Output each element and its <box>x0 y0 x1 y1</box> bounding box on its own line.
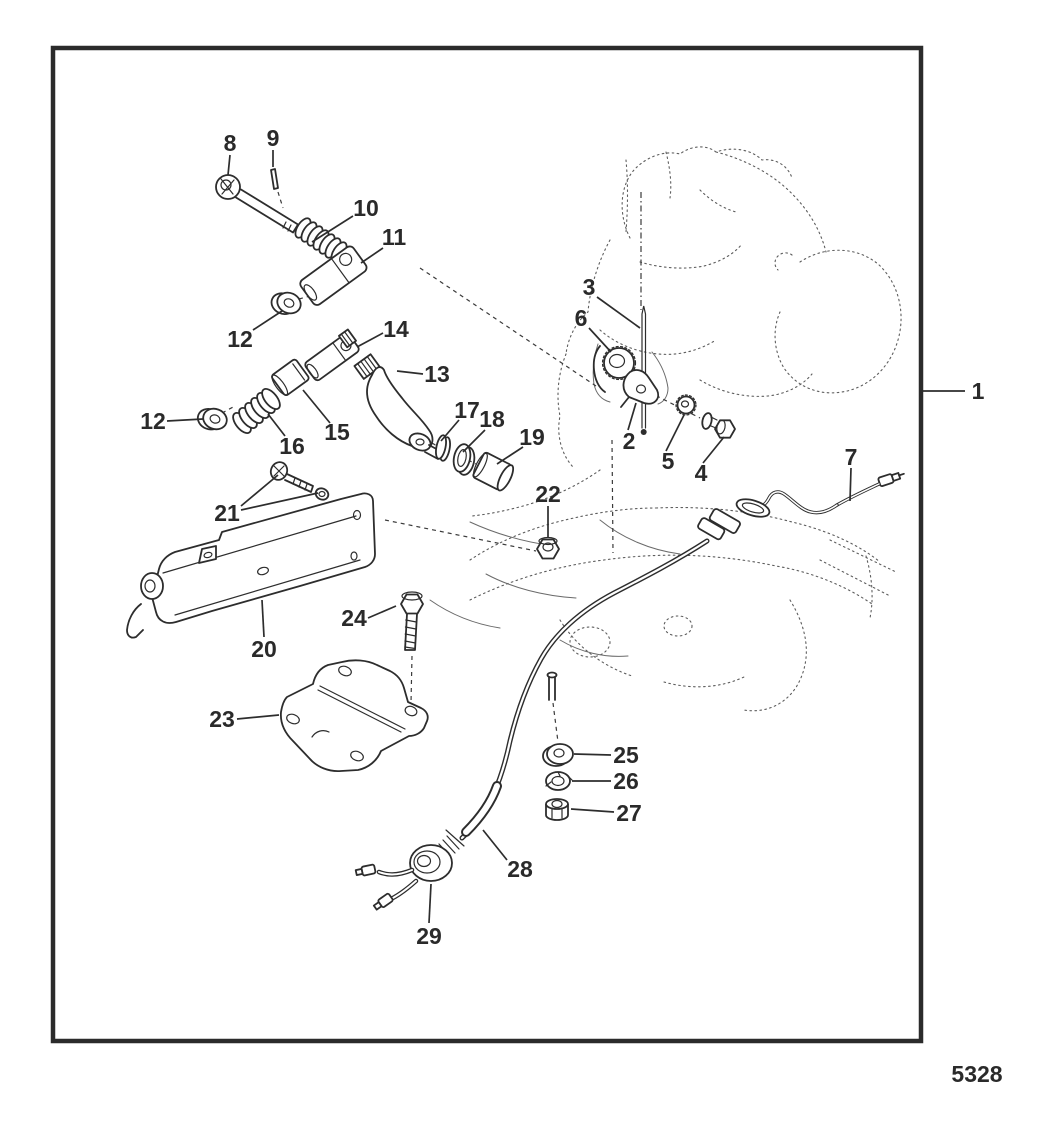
part-2-cam-lever <box>621 370 658 407</box>
part-22-nut <box>537 538 559 559</box>
leader-line-27 <box>571 809 614 812</box>
leader-line-20 <box>262 600 264 637</box>
callout-8: 8 <box>224 130 237 156</box>
part-9-pin <box>271 169 278 189</box>
callout-26: 26 <box>613 768 639 794</box>
callout-17: 17 <box>454 397 480 423</box>
callout-3: 3 <box>583 274 596 300</box>
part-stud <box>548 673 557 701</box>
leader-line-28 <box>483 830 507 860</box>
callout-1: 1 <box>972 378 985 404</box>
part-24-bolt <box>401 592 423 650</box>
part-14-link <box>302 329 362 382</box>
part-18-seal-ring <box>451 443 476 477</box>
leader-line-6 <box>589 328 611 352</box>
leader-line-18 <box>463 430 485 452</box>
callout-9: 9 <box>267 125 280 151</box>
callout-12: 12 <box>227 326 253 352</box>
callout-28: 28 <box>507 856 533 882</box>
part-12-washer-upper <box>268 287 304 320</box>
leader-line-2 <box>628 403 636 430</box>
callout-19: 19 <box>519 424 545 450</box>
callout-7: 7 <box>845 444 858 470</box>
leader-line-29 <box>429 884 431 923</box>
callout-29: 29 <box>416 923 442 949</box>
leader-line-21 <box>241 475 278 506</box>
cable-end-fitting <box>878 470 906 487</box>
part-25-washer <box>543 744 573 766</box>
callout-10: 10 <box>353 195 379 221</box>
part-27-nut <box>546 799 568 820</box>
part-5-nut <box>676 395 696 415</box>
callout-25: 25 <box>613 742 639 768</box>
callout-4: 4 <box>695 460 708 486</box>
callout-24: 24 <box>341 605 367 631</box>
part-16-spring <box>230 386 283 436</box>
part-19-bushing <box>470 451 516 493</box>
callout-14: 14 <box>383 316 409 342</box>
part-23-mounting-plate <box>281 660 428 771</box>
callout-12: 12 <box>140 408 166 434</box>
part-21-screw-and-washer <box>268 459 330 501</box>
leader-line-12 <box>253 311 282 330</box>
part-7-throttle-cable <box>462 470 905 838</box>
callout-21: 21 <box>214 500 240 526</box>
leader-line-5 <box>666 415 684 451</box>
part-4-bolt <box>701 412 735 437</box>
callout-2: 2 <box>623 428 636 454</box>
leader-line-7 <box>850 468 851 501</box>
leader-line-14 <box>357 333 383 347</box>
callout-6: 6 <box>575 305 588 331</box>
part-29-connector <box>355 830 464 911</box>
callout-11: 11 <box>382 224 407 250</box>
callout-18: 18 <box>479 406 505 432</box>
callout-16: 16 <box>279 433 305 459</box>
callout-23: 23 <box>209 706 235 732</box>
leader-line-25 <box>574 754 611 755</box>
callout-22: 22 <box>535 481 561 507</box>
leader-line-3 <box>597 297 640 328</box>
part-26-lock-washer <box>546 772 572 790</box>
callout-13: 13 <box>424 361 450 387</box>
figure-number: 5328 <box>951 1061 1002 1087</box>
leader-line-17 <box>441 420 459 441</box>
callout-5: 5 <box>662 448 675 474</box>
leader-line-11 <box>361 248 383 263</box>
parts-diagram-page: 1234567891011121314151612171819202122232… <box>0 0 1046 1128</box>
leader-line-13 <box>397 371 423 374</box>
cable-grommet-28 <box>466 786 497 832</box>
throttle-linkage-exploded-diagram: 1234567891011121314151612171819202122232… <box>0 0 1046 1128</box>
part-20-bracket <box>127 493 375 637</box>
leader-line-24 <box>368 606 396 618</box>
diagram-border <box>53 48 921 1041</box>
callout-27: 27 <box>616 800 642 826</box>
leader-line-23 <box>237 715 279 719</box>
leader-line-8 <box>228 155 230 175</box>
part-8-shoulder-screw <box>216 175 298 233</box>
callout-15: 15 <box>324 419 350 445</box>
callout-20: 20 <box>251 636 277 662</box>
